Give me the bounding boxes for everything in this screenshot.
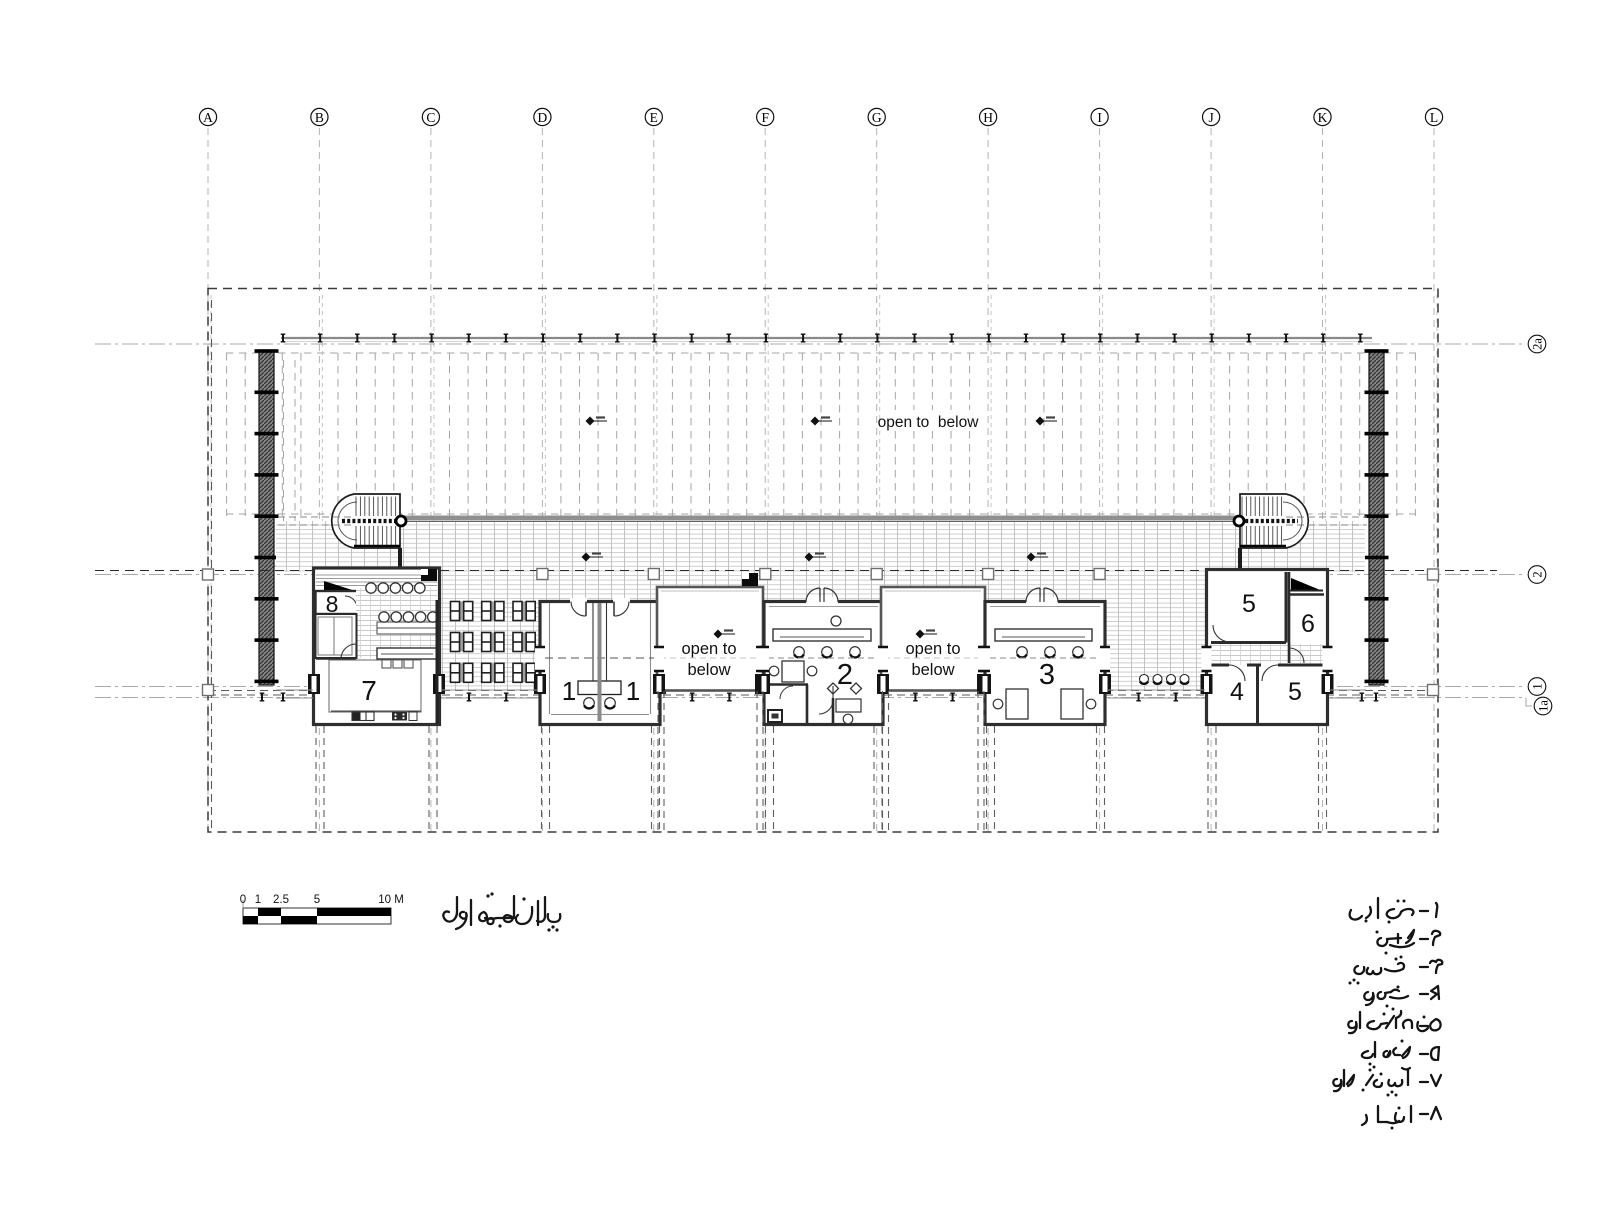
svg-text:G: G <box>872 110 882 125</box>
svg-text:open to: open to <box>681 640 736 658</box>
svg-text:A: A <box>203 110 213 125</box>
svg-text:1: 1 <box>1531 683 1545 689</box>
svg-text:F: F <box>761 110 769 125</box>
svg-text:4: 4 <box>1230 678 1244 706</box>
svg-text:below: below <box>687 661 730 679</box>
svg-text:1: 1 <box>562 676 576 706</box>
svg-text:7: 7 <box>361 675 377 706</box>
svg-text:L: L <box>1430 110 1438 125</box>
svg-text:1: 1 <box>626 676 640 706</box>
svg-text:2: 2 <box>1531 571 1545 577</box>
svg-text:J: J <box>1208 110 1213 125</box>
svg-text:5: 5 <box>1242 590 1256 618</box>
svg-text:5: 5 <box>314 894 320 906</box>
svg-text:5: 5 <box>1288 678 1302 706</box>
svg-text:D: D <box>538 110 548 125</box>
svg-text:1a: 1a <box>1537 700 1551 712</box>
svg-text:2a: 2a <box>1531 338 1545 350</box>
svg-text:6: 6 <box>1301 610 1315 638</box>
svg-text:H: H <box>983 110 993 125</box>
svg-text:10 M: 10 M <box>378 894 404 906</box>
svg-text:open to: open to <box>905 640 960 658</box>
svg-text:2.5: 2.5 <box>273 894 289 906</box>
svg-text:2: 2 <box>837 659 853 691</box>
svg-text:I: I <box>1097 110 1102 125</box>
svg-text:B: B <box>315 110 324 125</box>
svg-text:open to below: open to below <box>878 414 980 431</box>
svg-text:C: C <box>426 110 435 125</box>
svg-text:K: K <box>1318 110 1328 125</box>
svg-text:below: below <box>911 661 954 679</box>
svg-text:0: 0 <box>240 894 246 906</box>
svg-text:E: E <box>650 110 658 125</box>
svg-text:1: 1 <box>255 894 261 906</box>
svg-text:3: 3 <box>1039 659 1055 691</box>
